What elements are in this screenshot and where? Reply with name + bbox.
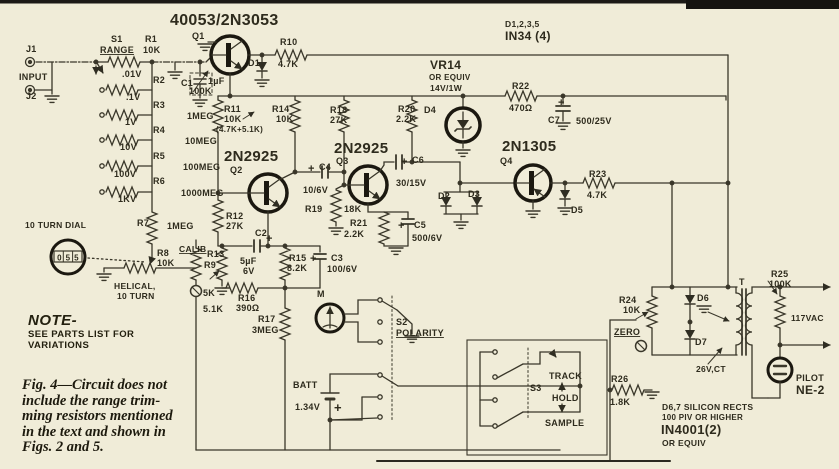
transistor-q2 <box>249 174 287 212</box>
label-r2: R2 <box>153 75 165 85</box>
label-r1-val: 10K <box>143 45 161 55</box>
label-q1-part: 40053/2N3053 <box>170 12 279 29</box>
label-vr14-rating: 14V/1W <box>430 83 463 93</box>
label-r11: R11 <box>224 104 241 114</box>
label-tap-p1v: .1V <box>126 92 140 102</box>
label-r13-val: 5.1K <box>203 304 223 314</box>
caption-line: Figs. 2 and 5. <box>22 440 188 456</box>
dial-digit-1: 5 <box>66 254 71 263</box>
label-c4-plus: + <box>308 163 315 175</box>
label-r7: R7 <box>137 218 149 228</box>
label-d-group: D1,2,3,5 <box>505 19 540 29</box>
label-r16-val: 390Ω <box>236 303 259 313</box>
label-tap-1kv: 1KV <box>118 194 136 204</box>
caption-line: ming resistors mentioned <box>22 409 188 425</box>
label-r26: R26 <box>611 374 628 384</box>
label-q2-part: 2N2925 <box>224 148 278 165</box>
label-sample: SAMPLE <box>545 418 584 428</box>
dial-digit-0: 0 <box>57 254 62 263</box>
label-q2: Q2 <box>230 165 243 175</box>
label-r20-val: 2.2K <box>396 114 416 124</box>
label-tap-100v: 100V <box>114 169 136 179</box>
label-d4: D4 <box>424 105 436 115</box>
label-c6-val: 30/15V <box>396 178 426 188</box>
label-q4: Q4 <box>500 156 513 166</box>
label-d1: D1 <box>248 58 260 68</box>
mode-switch-s3[interactable] <box>467 340 607 455</box>
label-r5-val: 100MEG <box>183 162 220 172</box>
label-d5: D5 <box>571 205 583 215</box>
label-c7: C7 <box>548 115 560 125</box>
label-r5: R5 <box>153 151 165 161</box>
label-r4: R4 <box>153 125 165 135</box>
label-r9-val: 5K <box>203 288 215 298</box>
label-r23: R23 <box>589 169 606 179</box>
transistor-q3 <box>349 166 387 204</box>
label-d-group-type: IN34 (4) <box>505 29 551 43</box>
label-range: RANGE <box>100 45 134 55</box>
label-r12-val: 27K <box>226 221 244 231</box>
label-dial-title: 10 TURN DIAL <box>25 220 86 230</box>
label-rects-4: OR EQUIV <box>662 438 706 448</box>
label-rects-3: IN4001(2) <box>661 422 722 437</box>
label-helical-1: HELICAL, <box>114 281 156 291</box>
label-r6: R6 <box>153 176 165 186</box>
label-r24-val: 10K <box>623 305 641 315</box>
label-zero: ZERO <box>614 327 640 337</box>
label-r16: R16 <box>238 293 255 303</box>
label-c2-val2: 6V <box>243 266 255 276</box>
dial-digit-2: 5 <box>74 254 79 263</box>
label-r15-val: 8.2K <box>287 263 307 273</box>
label-d3: D3 <box>468 189 480 199</box>
label-tap-1v: 1V <box>125 117 137 127</box>
label-d2: D2 <box>438 191 450 201</box>
label-c5-plus: + <box>398 220 405 232</box>
label-c3-val: 100/6V <box>327 264 357 274</box>
note-title: NOTE- <box>28 312 178 329</box>
input-jack-j1 <box>26 58 35 67</box>
label-c6-plus: + <box>401 156 408 168</box>
caption-line: Fig. 4—Circuit does not <box>22 378 188 394</box>
label-hold: HOLD <box>552 393 579 403</box>
label-r15: R15 <box>289 253 306 263</box>
label-c5-val: 500/6V <box>412 233 442 243</box>
label-vr14-equiv: OR EQUIV <box>429 73 471 82</box>
label-rects-1: D6,7 SILICON RECTS <box>662 402 753 412</box>
label-r8-val: 10K <box>157 258 175 268</box>
battery <box>321 374 377 450</box>
label-s2: S2 <box>396 317 408 327</box>
power-supply <box>636 285 738 364</box>
label-j1: J1 <box>26 44 37 54</box>
label-c5: C5 <box>414 220 426 230</box>
label-input: INPUT <box>19 72 48 82</box>
note-line: SEE PARTS LIST FOR <box>28 329 178 340</box>
label-batt-val: 1.34V <box>295 402 320 412</box>
label-c2-plus: + <box>266 233 273 245</box>
label-c1-val: 1µF <box>208 76 225 86</box>
label-c4: C4 <box>319 162 331 172</box>
label-c2-val1: 5µF <box>240 256 257 266</box>
label-r25: R25 <box>771 269 788 279</box>
label-c7-val: 500/25V <box>576 116 612 126</box>
label-r21: R21 <box>350 218 367 228</box>
note-line: VARIATIONS <box>28 340 178 351</box>
note-block: NOTE- SEE PARTS LIST FOR VARIATIONS <box>28 312 178 351</box>
label-r11-note: (4.7K+5.1K) <box>216 125 263 134</box>
label-r8: R8 <box>157 248 169 258</box>
label-r18-val: 27K <box>330 115 348 125</box>
label-r1: R1 <box>145 34 157 44</box>
label-r22-val: 470Ω <box>509 103 532 113</box>
label-ne2: NE-2 <box>796 383 825 397</box>
caption-line: include the range trim- <box>22 394 188 410</box>
label-j2: J2 <box>26 91 37 101</box>
label-rects-2: 100 PIV OR HIGHER <box>662 413 743 422</box>
zener-vr14-d4 <box>446 94 480 156</box>
label-tap-01v: .01V <box>122 69 142 79</box>
label-r17-val: 3MEG <box>252 325 279 335</box>
feedback-network <box>218 240 326 450</box>
label-r10: R10 <box>280 37 297 47</box>
pot-r9[interactable] <box>191 240 202 450</box>
caption-line: in the text and shown in <box>22 425 188 441</box>
label-c7-plus: + <box>558 97 565 109</box>
label-r13: R13 <box>207 249 224 259</box>
schematic-page: 40053/2N3053Q1D1,2,3,5IN34 (4)J1INPUTJ2S… <box>0 0 839 469</box>
label-r3: R3 <box>153 100 165 110</box>
label-t: T <box>739 277 745 287</box>
helical-pot-r8[interactable] <box>97 258 196 280</box>
label-c6: C6 <box>412 155 424 165</box>
label-c4-val: 10/6V <box>303 185 328 195</box>
label-r4-val: 10MEG <box>185 136 217 146</box>
label-track: TRACK <box>549 371 582 381</box>
figure-caption: Fig. 4—Circuit does not include the rang… <box>22 378 188 456</box>
polarity-switch-s2[interactable] <box>378 296 580 420</box>
label-r25-val: 100K <box>769 279 792 289</box>
label-r9: R9 <box>204 260 216 270</box>
label-c3: C3 <box>331 253 343 263</box>
label-s3: S3 <box>530 383 542 393</box>
label-r3-val: 1MEG <box>187 111 214 121</box>
label-r14: R14 <box>272 104 289 114</box>
label-r19-val: 18K <box>344 204 362 214</box>
label-q4-part: 2N1305 <box>502 138 556 155</box>
range-switch-s1[interactable] <box>94 60 104 194</box>
label-r18: R18 <box>330 105 347 115</box>
label-q3-part: 2N2925 <box>334 140 388 157</box>
label-r24: R24 <box>619 295 636 305</box>
label-c3-plus: + <box>310 253 317 265</box>
label-calib: CALIB <box>179 244 206 254</box>
meter-m <box>316 300 377 342</box>
label-r14-val: 10K <box>276 114 294 124</box>
label-c1: C1 <box>181 78 193 88</box>
transistor-q4 <box>515 165 551 201</box>
label-polarity: POLARITY <box>396 328 444 338</box>
label-r23-val: 4.7K <box>587 190 607 200</box>
transistor-q1 <box>211 36 249 74</box>
label-r21-val: 2.2K <box>344 229 364 239</box>
label-d7: D7 <box>695 337 707 347</box>
label-r11-val: 10K <box>224 114 242 124</box>
label-q3: Q3 <box>336 156 349 166</box>
label-vac: 117VAC <box>791 313 824 323</box>
label-pilot: PILOT <box>796 373 824 383</box>
label-batt-plus: + <box>334 400 342 415</box>
label-r19: R19 <box>305 204 322 214</box>
label-r12: R12 <box>226 211 243 221</box>
label-m: M <box>317 289 325 299</box>
label-s1: S1 <box>111 34 123 44</box>
label-r7-val: 1MEG <box>167 221 194 231</box>
label-r10-val: 4.7K <box>278 59 298 69</box>
label-ct: 26V,CT <box>696 364 726 374</box>
label-r6-val: 1000MEG <box>181 188 224 198</box>
label-batt: BATT <box>293 380 318 390</box>
label-vr14: VR14 <box>430 58 461 72</box>
label-tap-10v: 10V <box>120 142 137 152</box>
label-r26-val: 1.8K <box>610 397 630 407</box>
label-q1: Q1 <box>192 31 205 41</box>
page-edge-bars <box>0 0 839 9</box>
label-d6: D6 <box>697 293 709 303</box>
label-r22: R22 <box>512 81 529 91</box>
label-r20: R20 <box>398 104 415 114</box>
label-helical-2: 10 TURN <box>117 291 155 301</box>
label-r17: R17 <box>258 314 275 324</box>
